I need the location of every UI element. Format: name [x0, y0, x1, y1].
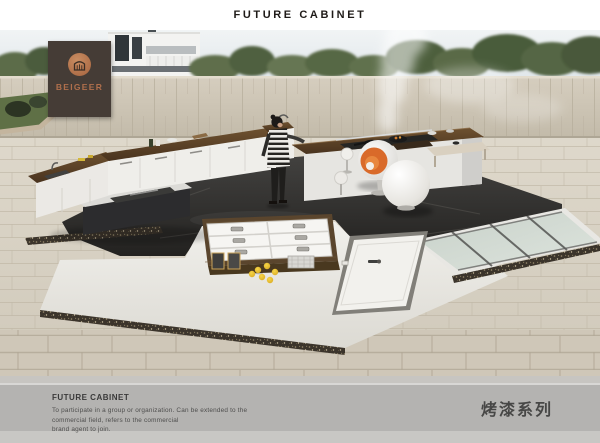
brand-banner: BEIGEER — [48, 41, 111, 117]
footer-text-block: FUTURE CABINET To participate in a group… — [52, 393, 247, 435]
scene-photo: BEIGEER — [0, 30, 600, 385]
page-title: FUTURE CABINET — [234, 9, 367, 21]
brand-logo — [68, 53, 91, 76]
poster-footer: FUTURE CABINET To participate in a group… — [0, 383, 600, 443]
poster: FUTURE CABINET — [0, 0, 600, 443]
poster-header: FUTURE CABINET — [0, 0, 600, 30]
footer-body-line: commercial field, refers to the commerci… — [52, 416, 247, 426]
footer-body-line: To participate in a group or organizatio… — [52, 406, 247, 416]
house-icon — [73, 59, 86, 71]
series-label: 烤漆系列 — [481, 396, 553, 420]
footer-body: To participate in a group or organizatio… — [52, 406, 247, 435]
background-building — [108, 30, 200, 76]
footer-heading: FUTURE CABINET — [52, 393, 247, 402]
footer-body-line: brand agent to join. — [52, 425, 247, 435]
brand-name: BEIGEER — [56, 82, 103, 92]
